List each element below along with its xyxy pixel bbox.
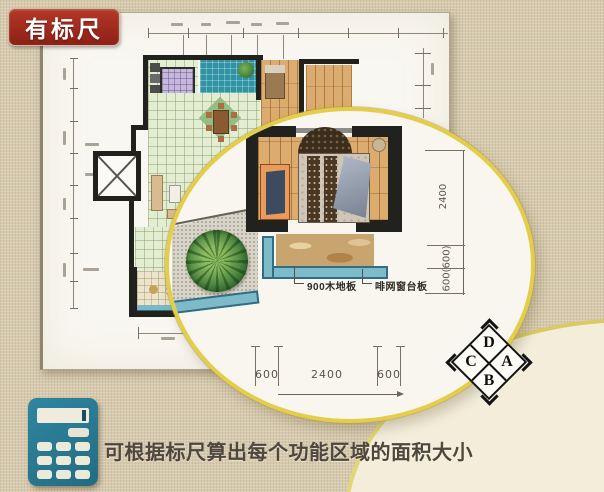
sill-material-label: 啡网窗台板: [375, 278, 428, 293]
calculator-display: [37, 408, 89, 423]
micro-label: [251, 23, 262, 26]
bathroom-plant: [238, 62, 254, 78]
tick: [251, 346, 260, 347]
dim-2400: 2400: [299, 368, 355, 381]
tick: [70, 281, 78, 282]
compass-letter-c: C: [463, 353, 479, 371]
calculator-button: [75, 456, 90, 465]
tick: [425, 150, 465, 151]
micro-label: [201, 23, 211, 26]
bedroom1-pillow: [265, 65, 285, 73]
calculator-button: [56, 470, 71, 479]
ruler-left: [73, 58, 74, 308]
tick: [348, 28, 349, 38]
micro-label: [276, 22, 289, 25]
balcony-sill-left: [262, 236, 274, 279]
chair: [218, 103, 224, 109]
wardrobe: [260, 164, 290, 220]
dim-600-right: 600: [377, 368, 400, 381]
wall: [301, 59, 359, 64]
micro-label: [63, 68, 66, 80]
tick: [443, 28, 444, 38]
tick: [70, 153, 78, 154]
tick: [70, 185, 78, 186]
kitchen-appliance: [150, 74, 160, 83]
calculator-button: [37, 470, 52, 479]
wardrobe-panel: [266, 170, 285, 215]
wall: [246, 220, 288, 232]
micro-label: [63, 131, 66, 145]
micro-label: [226, 21, 240, 24]
leader-line: [362, 269, 363, 284]
micro-label: [63, 263, 66, 277]
compass-rose: D A B C: [449, 322, 529, 402]
micro-label: [83, 268, 99, 271]
elevator-shaft: [93, 151, 141, 201]
caption-text: 可根据标尺算出每个功能区域的面积大小: [104, 436, 524, 465]
dim-600-left: 600: [255, 368, 278, 381]
leader-line: [257, 35, 258, 57]
side-table: [372, 138, 386, 152]
tick: [415, 85, 431, 86]
tick: [415, 108, 431, 109]
compass-letter-a: A: [499, 353, 515, 371]
leader-line: [283, 35, 284, 59]
dim-600-600-vert: 600(600): [441, 246, 452, 292]
sofa: [151, 175, 163, 211]
dim-vline: [463, 150, 464, 295]
calculator-button: [56, 456, 71, 465]
tick: [70, 218, 78, 219]
bed-runner: [307, 156, 320, 222]
bed-blanket: [333, 156, 371, 218]
calculator-button: [56, 442, 71, 451]
balcony-chair: [149, 285, 158, 294]
dim-arrow: [397, 391, 404, 397]
bed-runner: [324, 156, 337, 222]
tick: [148, 28, 149, 38]
tick: [398, 28, 399, 38]
tick: [70, 308, 78, 309]
wall: [256, 55, 261, 100]
tick: [298, 28, 299, 38]
tick: [396, 346, 405, 347]
tick: [415, 53, 431, 54]
tick: [70, 88, 78, 89]
kitchen-appliance: [150, 63, 160, 72]
calculator-button: [75, 442, 90, 451]
leader-line: [206, 35, 207, 57]
tick: [70, 121, 78, 122]
dim-baseline: [278, 394, 402, 395]
wall: [388, 126, 402, 232]
micro-label: [171, 23, 183, 26]
micro-label: [85, 143, 99, 146]
micro-label: [431, 63, 434, 75]
leader-line: [362, 283, 372, 284]
dim-2400-vert: 2400: [438, 184, 449, 209]
infographic-floorplan-scale: 900木地板 啡网窗台板 600 2400 600 2400: [0, 0, 604, 492]
tick: [373, 346, 382, 347]
wall: [129, 267, 137, 315]
floor-material-label: 900木地板: [307, 278, 357, 293]
wall: [143, 55, 263, 60]
elevator-x-icon: [98, 156, 136, 196]
calculator-button: [68, 428, 89, 437]
tick: [138, 327, 139, 339]
wall: [246, 126, 258, 232]
wall: [143, 55, 148, 127]
big-plant: [186, 230, 248, 292]
tick: [188, 28, 189, 38]
tick: [274, 346, 283, 347]
calculator-button: [37, 442, 52, 451]
leader-line: [294, 283, 304, 284]
leader-line: [294, 266, 295, 284]
bed: [298, 153, 370, 223]
tick: [243, 28, 244, 38]
micro-label: [63, 198, 66, 210]
has-scale-badge: 有标尺: [8, 8, 120, 46]
calculator-button: [75, 470, 90, 479]
balcony-marble-floor: [276, 234, 374, 268]
tick: [425, 293, 465, 294]
calculator-icon: [28, 398, 98, 486]
tick: [70, 253, 78, 254]
wall: [246, 126, 296, 137]
calculator-button: [37, 456, 52, 465]
tick: [70, 58, 78, 59]
